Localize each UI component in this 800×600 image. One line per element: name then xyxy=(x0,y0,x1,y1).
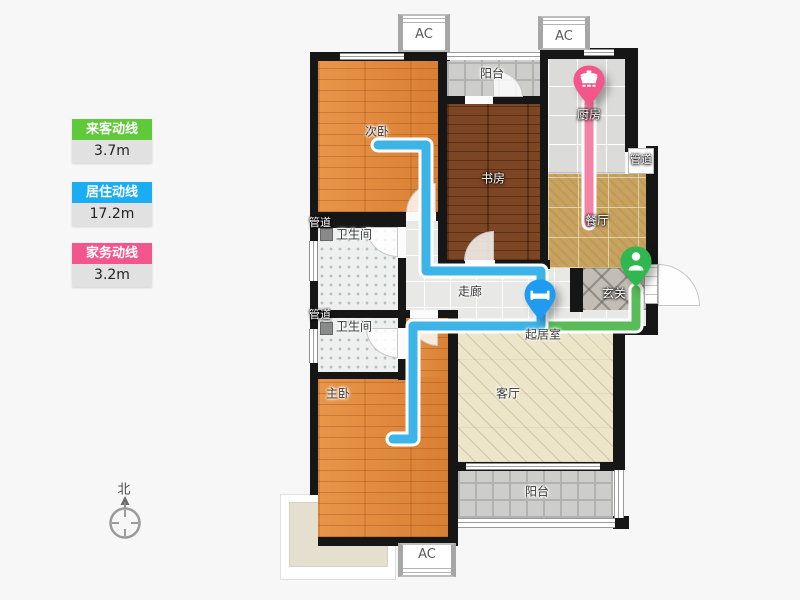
label-dining: 餐厅 xyxy=(585,212,609,229)
floorplan-canvas: 来客动线 3.7m 居住动线 17.2m 家务动线 3.2m 北 xyxy=(0,0,800,600)
entry-pin[interactable] xyxy=(619,245,653,289)
label-duct-bath2: 管道 xyxy=(309,306,331,322)
label-study: 书房 xyxy=(481,170,505,187)
label-balcony-bottom: 阳台 xyxy=(525,483,549,500)
kitchen-pin[interactable] xyxy=(572,64,606,108)
label-living-area: 起居室 xyxy=(525,326,561,343)
living-pin[interactable] xyxy=(523,278,557,322)
label-duct-bath1: 管道 xyxy=(309,214,331,230)
compass-icon xyxy=(108,494,142,542)
label-duct-right: 管道 xyxy=(630,151,652,167)
label-bath2: 卫生间 xyxy=(336,318,372,335)
label-kitchen: 厨房 xyxy=(577,106,601,123)
label-bedroom2: 次卧 xyxy=(365,123,389,140)
label-living: 客厅 xyxy=(496,385,520,402)
label-balcony-top: 阳台 xyxy=(480,65,504,82)
label-master: 主卧 xyxy=(326,385,350,402)
label-corridor: 走廊 xyxy=(458,283,482,300)
compass-north-label: 北 xyxy=(117,479,130,498)
pin-body xyxy=(525,280,556,321)
label-bath1: 卫生间 xyxy=(336,226,372,243)
